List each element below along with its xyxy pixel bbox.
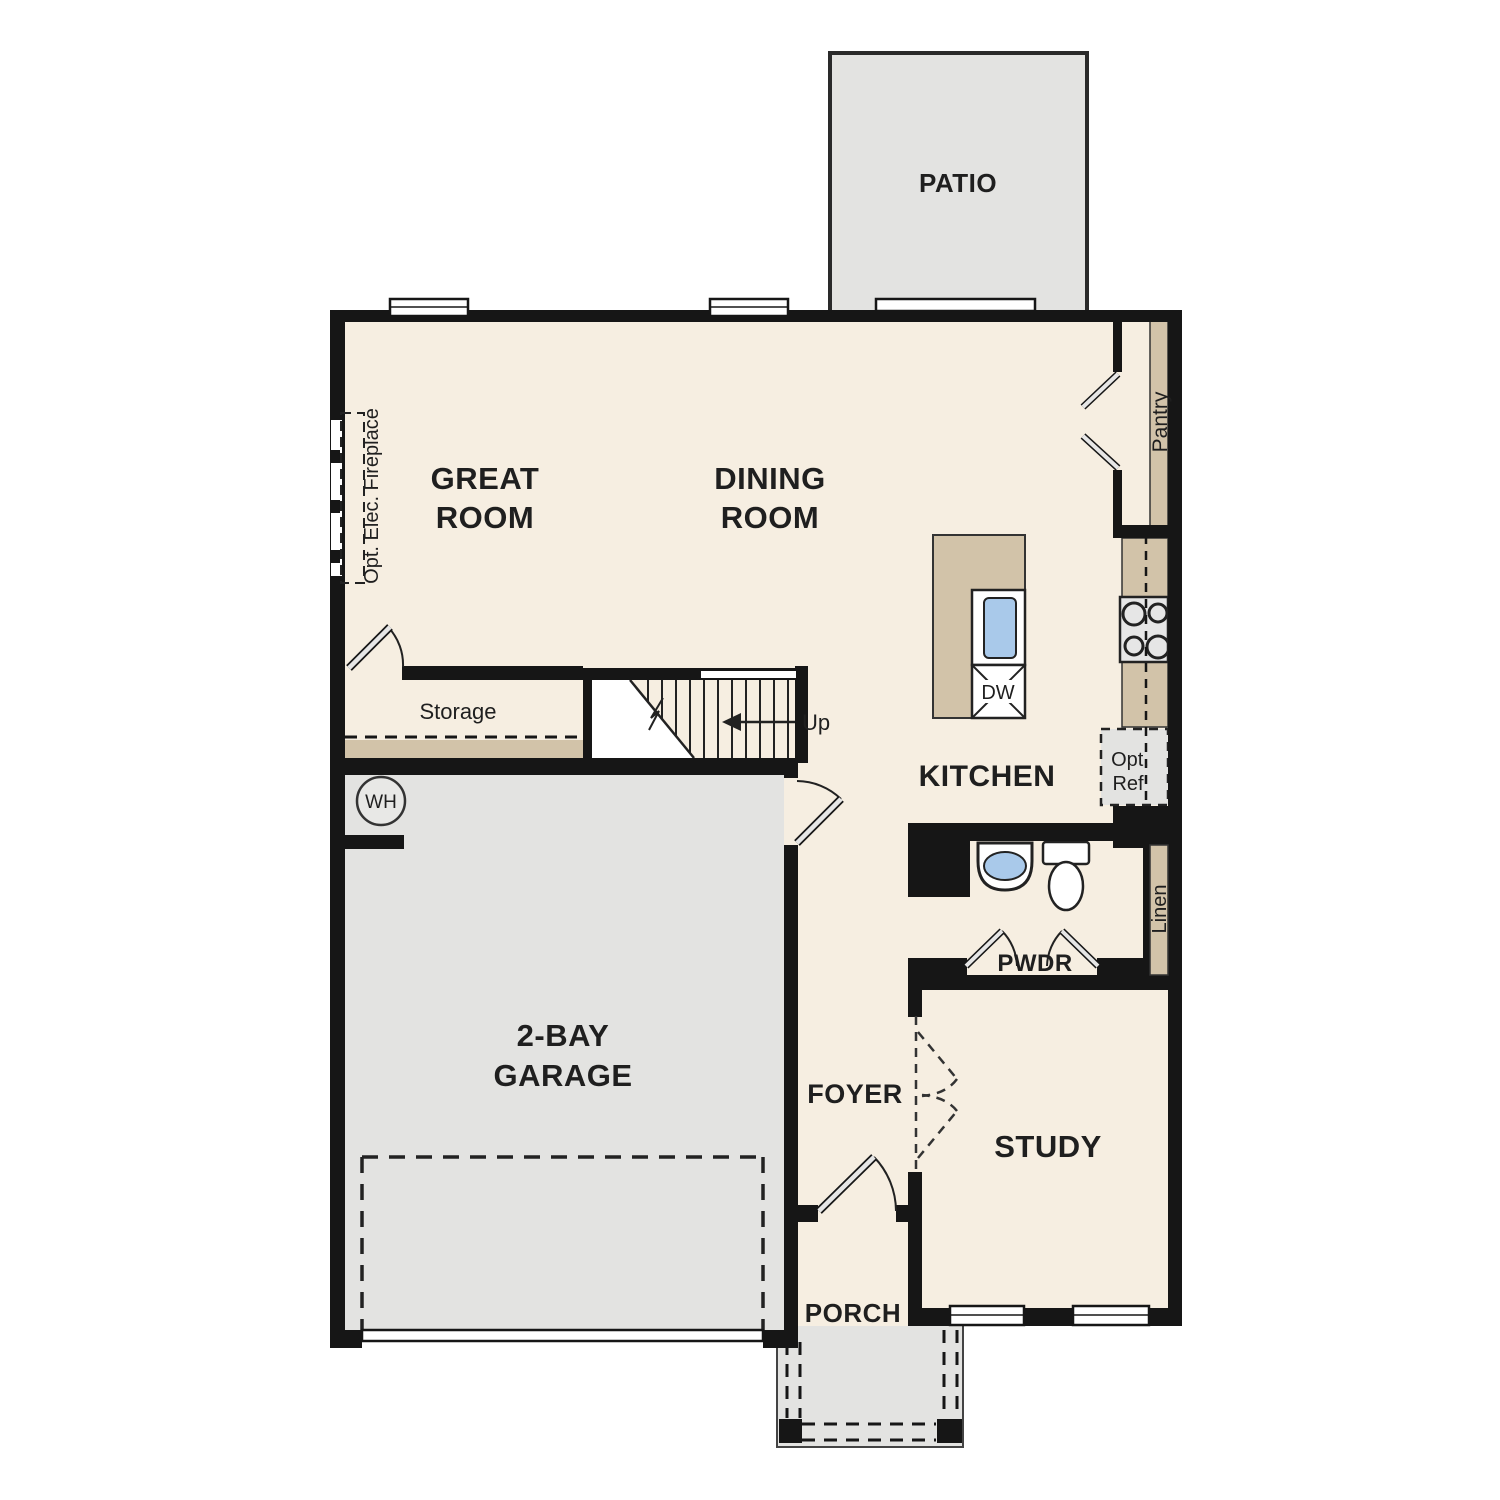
label-opt-fireplace: Opt. Elec. Fireplace bbox=[361, 408, 383, 584]
window-study-2 bbox=[1073, 1306, 1149, 1325]
porch-lower-pad bbox=[777, 1325, 963, 1447]
label-porch: PORCH bbox=[805, 1298, 901, 1328]
window-dining bbox=[710, 299, 788, 316]
label-linen: Linen bbox=[1149, 885, 1171, 934]
label-opt-ref-1: Opt. bbox=[1111, 749, 1149, 771]
patio-sliding-door bbox=[876, 299, 1035, 318]
label-great-room-2: ROOM bbox=[436, 500, 534, 535]
sink-basin bbox=[984, 852, 1026, 880]
label-wh: WH bbox=[365, 792, 397, 813]
label-dining-room-2: ROOM bbox=[721, 500, 819, 535]
label-garage-1: 2-BAY bbox=[517, 1018, 610, 1053]
stair-rail bbox=[700, 670, 797, 679]
label-pwdr: PWDR bbox=[997, 950, 1072, 977]
kitchen-sink bbox=[984, 598, 1016, 658]
window-great-room bbox=[390, 299, 468, 316]
label-opt-ref-2: Ref bbox=[1112, 773, 1144, 795]
label-patio: PATIO bbox=[919, 168, 997, 198]
floor-plan-svg: PATIO GREAT ROOM DINING ROOM KITCHEN 2-B… bbox=[0, 0, 1500, 1500]
storage-area bbox=[345, 737, 583, 758]
label-kitchen: KITCHEN bbox=[919, 760, 1056, 793]
porch-post-right bbox=[937, 1419, 962, 1443]
label-dining-room-1: DINING bbox=[714, 461, 826, 496]
label-storage: Storage bbox=[419, 699, 496, 724]
label-up: Up bbox=[802, 710, 830, 735]
label-garage-2: GARAGE bbox=[493, 1058, 632, 1093]
label-study: STUDY bbox=[994, 1129, 1102, 1164]
porch-post-left bbox=[779, 1419, 802, 1443]
floor-plan-page: PATIO GREAT ROOM DINING ROOM KITCHEN 2-B… bbox=[0, 0, 1500, 1500]
stove bbox=[1120, 597, 1169, 662]
garage-door bbox=[362, 1330, 763, 1341]
label-foyer: FOYER bbox=[807, 1079, 903, 1109]
label-dw: DW bbox=[981, 682, 1014, 704]
label-pantry: Pantry bbox=[1149, 391, 1172, 452]
window-study-1 bbox=[950, 1306, 1024, 1325]
label-great-room-1: GREAT bbox=[431, 461, 540, 496]
